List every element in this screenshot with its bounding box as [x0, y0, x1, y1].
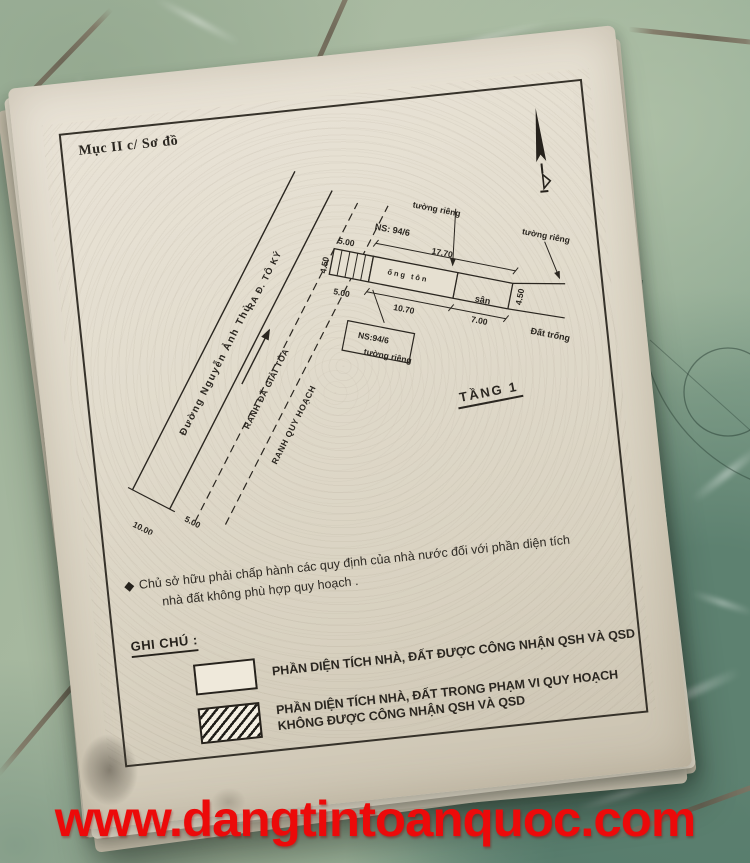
yard-label: sân — [474, 293, 491, 306]
regulation-note: ◆Chủ sở hữu phải chấp hành các quy định … — [123, 525, 624, 616]
dim-road-width: 10.00 — [131, 519, 155, 538]
boundary-cleared-label: RANH ĐÃ GIẢI TỎA — [241, 346, 291, 430]
dim-yard-bottom: 7.00 — [470, 314, 488, 327]
vacant-land-label: Đất trống — [530, 326, 571, 343]
road-name-label: Đường Nguyễn Ảnh Thủ — [176, 301, 254, 437]
dim-road-offset: 5.00 — [183, 514, 203, 531]
document-border-frame: Mục II c/ Sơ đồ Đường Nguyễn Ảnh Thủ — [59, 79, 649, 767]
wall-label-bottom: tường riêng — [363, 346, 413, 365]
watermark-url: www.dangtintoanquoc.com — [0, 790, 750, 848]
house-number-top: NS: 94/6 — [374, 222, 411, 239]
dim-hatch-top: 5.00 — [337, 235, 355, 248]
dim-house-bottom: 10.70 — [393, 302, 416, 316]
wall-label-top: tường riêng — [412, 199, 462, 218]
section-label: Mục II c/ Sơ đồ — [78, 133, 179, 159]
wall-label-right: tường riêng — [521, 226, 571, 245]
dim-depth-right: 4.50 — [513, 287, 526, 305]
site-plan-drawing: Đường Nguyễn Ảnh Thủ RA Đ. TÔ KÝ RANH ĐÃ… — [69, 125, 624, 539]
dim-depth-left: 4.50 — [318, 256, 331, 274]
legend-title: GHI CHÚ : — [130, 632, 199, 658]
legend-plain-box-symbol — [193, 658, 258, 695]
dim-front-total: 17.70 — [431, 246, 454, 260]
legend-hatched-box-symbol — [198, 702, 263, 744]
dim-hatch-bottom: 5.00 — [333, 286, 351, 299]
diamond-bullet-icon: ◆ — [123, 576, 135, 597]
house-number-bottom: NS:94/6 — [357, 330, 390, 346]
photo-of-document-on-tile-floor: { "scene": { "watermark_text": "www.dang… — [0, 0, 750, 863]
boundary-planning-label: RANH QUY HOẠCH — [269, 384, 317, 466]
document-page: Mục II c/ Sơ đồ Đường Nguyễn Ảnh Thủ — [8, 25, 693, 830]
